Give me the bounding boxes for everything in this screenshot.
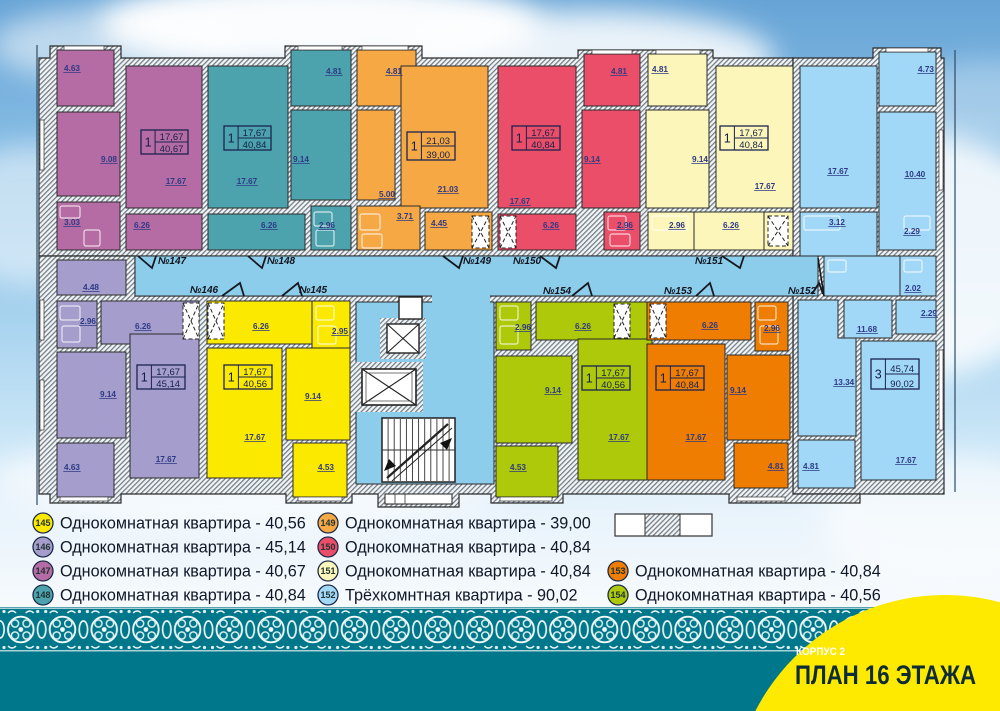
svg-text:40,56: 40,56	[243, 379, 267, 390]
svg-text:6.26: 6.26	[575, 322, 591, 331]
svg-text:№146: №146	[190, 285, 219, 296]
svg-text:11.68: 11.68	[857, 325, 877, 334]
svg-text:3: 3	[875, 368, 882, 382]
svg-text:40,56: 40,56	[601, 380, 625, 391]
svg-text:1: 1	[141, 371, 148, 385]
svg-text:3.71: 3.71	[397, 212, 413, 221]
svg-text:4.81: 4.81	[803, 462, 819, 471]
svg-text:17.67: 17.67	[156, 455, 177, 464]
svg-text:21.03: 21.03	[438, 185, 459, 194]
svg-text:4.53: 4.53	[318, 463, 334, 472]
svg-text:1: 1	[411, 140, 418, 154]
svg-text:Однокомнатная квартира - 40,84: Однокомнатная квартира - 40,84	[345, 563, 591, 581]
svg-text:17,67: 17,67	[739, 128, 763, 139]
svg-text:6.26: 6.26	[723, 221, 739, 230]
svg-text:3.12: 3.12	[829, 218, 845, 227]
svg-text:40,84: 40,84	[739, 140, 763, 151]
svg-text:40,84: 40,84	[243, 140, 267, 151]
svg-text:17.67: 17.67	[896, 456, 917, 465]
svg-text:1: 1	[145, 136, 152, 150]
svg-text:Однокомнатная квартира - 40,84: Однокомнатная квартира - 40,84	[635, 563, 881, 581]
svg-text:147: 147	[35, 566, 50, 576]
svg-text:Однокомнатная квартира - 40,67: Однокомнатная квартира - 40,67	[60, 563, 306, 581]
svg-text:4.81: 4.81	[326, 67, 342, 76]
svg-text:45,74: 45,74	[890, 364, 914, 375]
svg-text:2.96: 2.96	[669, 221, 685, 230]
svg-text:2.96: 2.96	[80, 317, 96, 326]
svg-text:1: 1	[516, 132, 523, 146]
svg-text:1: 1	[660, 372, 667, 386]
svg-text:6.26: 6.26	[261, 221, 277, 230]
svg-text:17,67: 17,67	[601, 368, 625, 379]
svg-text:2.29: 2.29	[904, 227, 920, 236]
svg-text:17.67: 17.67	[245, 433, 266, 442]
svg-text:17,67: 17,67	[243, 128, 267, 139]
svg-text:10.40: 10.40	[905, 170, 926, 179]
svg-text:154: 154	[610, 590, 625, 600]
svg-text:17.67: 17.67	[755, 182, 776, 191]
svg-text:9.14: 9.14	[100, 390, 116, 399]
svg-text:148: 148	[35, 590, 50, 600]
svg-text:Однокомнатная квартира - 40,84: Однокомнатная квартира - 40,84	[345, 539, 591, 557]
svg-text:153: 153	[610, 566, 625, 576]
svg-text:Однокомнатная квартира - 40,56: Однокомнатная квартира - 40,56	[60, 515, 306, 533]
svg-text:4.53: 4.53	[510, 463, 526, 472]
svg-text:Однокомнатная квартира - 40,84: Однокомнатная квартира - 40,84	[60, 587, 306, 605]
svg-text:17.67: 17.67	[166, 177, 187, 186]
svg-text:4.45: 4.45	[431, 219, 447, 228]
svg-text:Однокомнатная квартира - 39,00: Однокомнатная квартира - 39,00	[345, 515, 591, 533]
svg-text:17,67: 17,67	[156, 367, 180, 378]
svg-text:17.67: 17.67	[510, 197, 531, 206]
svg-text:№151: №151	[695, 256, 724, 267]
svg-text:6.26: 6.26	[253, 322, 269, 331]
svg-text:6.26: 6.26	[702, 321, 718, 330]
svg-text:1: 1	[724, 132, 731, 146]
svg-text:17,67: 17,67	[531, 128, 555, 139]
svg-text:№148: №148	[267, 256, 296, 267]
svg-text:21,03: 21,03	[426, 136, 450, 147]
svg-text:Трёхкомнтная квартира - 90,02: Трёхкомнтная квартира - 90,02	[345, 587, 578, 605]
svg-text:90,02: 90,02	[890, 379, 914, 390]
svg-text:17,67: 17,67	[160, 132, 184, 143]
svg-text:13.34: 13.34	[834, 378, 855, 387]
svg-text:2.95: 2.95	[332, 327, 348, 336]
svg-text:17,67: 17,67	[243, 367, 267, 378]
svg-text:40,84: 40,84	[531, 140, 555, 151]
svg-text:9.14: 9.14	[692, 155, 708, 164]
svg-text:9.14: 9.14	[545, 386, 561, 395]
svg-text:4.73: 4.73	[918, 65, 934, 74]
svg-text:40,67: 40,67	[160, 144, 184, 155]
svg-text:6.26: 6.26	[543, 221, 559, 230]
svg-text:№150: №150	[513, 256, 542, 267]
svg-text:Однокомнатная квартира - 45,14: Однокомнатная квартира - 45,14	[60, 539, 306, 557]
svg-text:№149: №149	[463, 256, 492, 267]
svg-text:5.00: 5.00	[379, 190, 395, 199]
svg-text:1: 1	[586, 372, 593, 386]
svg-text:9.14: 9.14	[305, 392, 321, 401]
svg-text:№154: №154	[543, 286, 572, 297]
svg-text:9.14: 9.14	[730, 386, 746, 395]
svg-text:6.26: 6.26	[134, 221, 150, 230]
svg-text:2.02: 2.02	[905, 284, 921, 293]
svg-text:17.67: 17.67	[609, 433, 630, 442]
svg-text:146: 146	[35, 542, 50, 552]
svg-text:2.96: 2.96	[319, 221, 335, 230]
svg-text:4.81: 4.81	[611, 67, 627, 76]
svg-text:2.96: 2.96	[764, 324, 780, 333]
svg-text:152: 152	[320, 590, 335, 600]
svg-text:2.29: 2.29	[921, 309, 937, 318]
svg-text:17.67: 17.67	[686, 433, 707, 442]
svg-text:ПЛАН 16 ЭТАЖА: ПЛАН 16 ЭТАЖА	[795, 660, 976, 690]
svg-text:9.08: 9.08	[101, 155, 117, 164]
svg-text:№145: №145	[299, 285, 328, 296]
svg-text:№153: №153	[664, 286, 693, 297]
svg-text:4.81: 4.81	[386, 67, 402, 76]
svg-text:145: 145	[35, 518, 50, 528]
svg-text:17.67: 17.67	[237, 177, 258, 186]
svg-text:17,67: 17,67	[675, 368, 699, 379]
svg-text:39,00: 39,00	[426, 150, 450, 161]
svg-text:149: 149	[320, 518, 335, 528]
svg-text:№147: №147	[158, 256, 187, 267]
svg-text:4.81: 4.81	[652, 65, 668, 74]
svg-text:150: 150	[320, 542, 335, 552]
svg-text:4.63: 4.63	[64, 463, 80, 472]
svg-text:КОРПУС 2: КОРПУС 2	[796, 646, 845, 658]
svg-text:17.67: 17.67	[828, 167, 849, 176]
svg-text:9.14: 9.14	[584, 155, 600, 164]
svg-text:Однокомнатная квартира - 40,56: Однокомнатная квартира - 40,56	[635, 587, 881, 605]
svg-text:9.14: 9.14	[293, 155, 309, 164]
svg-text:№152: №152	[788, 286, 817, 297]
svg-text:2.96: 2.96	[515, 323, 531, 332]
svg-text:151: 151	[320, 566, 335, 576]
svg-text:4.63: 4.63	[64, 64, 80, 73]
svg-text:4.81: 4.81	[768, 462, 784, 471]
svg-text:4.48: 4.48	[83, 283, 99, 292]
svg-text:6.26: 6.26	[135, 322, 151, 331]
svg-text:2.96: 2.96	[617, 221, 633, 230]
svg-text:3.03: 3.03	[64, 218, 80, 227]
svg-text:1: 1	[228, 371, 235, 385]
svg-text:45,14: 45,14	[156, 379, 180, 390]
svg-text:1: 1	[228, 132, 235, 146]
svg-text:40,84: 40,84	[675, 380, 699, 391]
